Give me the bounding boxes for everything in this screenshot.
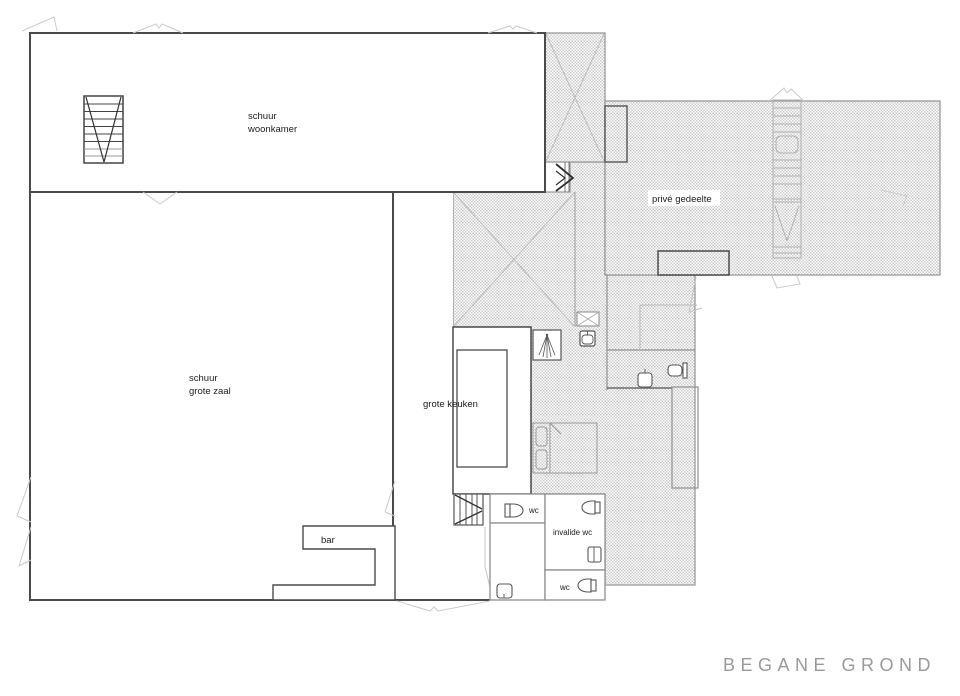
sink-icon-kitchen: [580, 331, 595, 346]
page-title: BEGANE GROND: [723, 655, 936, 675]
shower-icon: [533, 330, 561, 360]
label-woonkamer-line2: woonkamer: [247, 124, 297, 135]
toilet-icon-invalide: [582, 501, 600, 514]
label-grote-keuken: grote keuken: [423, 399, 478, 410]
label-zaal-line1: schuur: [189, 373, 218, 384]
toilet-icon-sideways: [668, 363, 687, 378]
staircase-woonkamer-icon: [84, 96, 123, 163]
label-prive-gedeelte: privé gedeelte: [652, 194, 712, 205]
label-wc-2: wc: [559, 583, 570, 592]
label-woonkamer-line1: schuur: [248, 111, 277, 122]
prive-dark-block: [658, 251, 729, 275]
label-invalide-wc: invalide wc: [553, 528, 592, 537]
label-wc-1: wc: [528, 506, 539, 515]
staircase-small-icon: [454, 494, 483, 525]
toilet-icon-wc1: [505, 504, 523, 517]
sink-icon-invalide: [588, 547, 601, 562]
sink-icon-hall: [497, 584, 512, 598]
label-bar: bar: [321, 535, 335, 546]
corridor: [393, 192, 453, 600]
label-zaal-line2: grote zaal: [189, 386, 231, 397]
floor-plan-drawing: schuur woonkamer schuur grote zaal grote…: [0, 0, 960, 696]
prive-entry-door: [605, 106, 627, 162]
hatched-column: [545, 33, 605, 162]
toilet-icon-wc2: [578, 579, 596, 592]
window-x-box: [577, 312, 599, 326]
floor-plan-canvas: schuur woonkamer schuur grote zaal grote…: [0, 0, 960, 696]
